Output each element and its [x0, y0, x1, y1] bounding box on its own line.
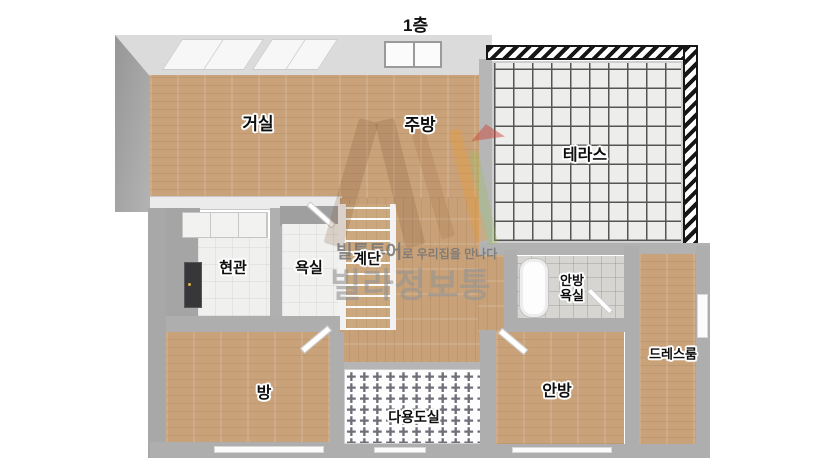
terrace-hatch-top	[486, 45, 690, 60]
wall-dressroom-left	[625, 246, 639, 458]
label-entrance: 현관	[219, 257, 247, 278]
label-terrace: 테라스	[563, 141, 607, 165]
label-master-bathroom-line2: 욕실	[560, 288, 584, 303]
wall-room-utility	[330, 332, 344, 458]
floorplan-canvas: 1층 ✚✚✚✚✚✚✚✚✚✚✚✚✚✚✚	[0, 0, 840, 472]
window-mullion	[413, 43, 415, 66]
window-mullion	[204, 40, 224, 69]
label-master-bathroom-line1: 안방	[560, 273, 584, 288]
window-mullion	[286, 40, 306, 69]
wall-master-bath-bottom	[504, 318, 624, 332]
wall-left-lower	[148, 208, 166, 458]
door-handle	[188, 283, 191, 286]
label-kitchen: 주방	[404, 111, 435, 136]
label-master-bedroom: 안방	[542, 377, 571, 401]
room-window-sill	[214, 446, 324, 453]
master-window-sill	[512, 447, 612, 453]
terrace-hatch-right	[683, 45, 698, 251]
entrance-door	[184, 262, 202, 308]
kitchen-window	[384, 41, 442, 68]
wall-utility-top	[344, 362, 480, 369]
entrance-closet	[182, 212, 268, 238]
dressroom-window	[697, 294, 708, 338]
label-stairs: 계단	[353, 248, 381, 269]
label-room: 방	[257, 379, 272, 403]
bathtub	[519, 258, 549, 318]
label-living-room: 거실	[242, 110, 273, 135]
label-utility: 다용도실	[388, 407, 440, 427]
label-dressroom: 드레스룸	[649, 344, 697, 363]
label-bathroom: 욕실	[295, 257, 323, 278]
wall-room-top	[148, 316, 340, 332]
wall-utility-master	[480, 330, 496, 458]
wall-dressroom-bottom	[639, 444, 710, 458]
label-master-bathroom: 안방 욕실	[560, 273, 584, 303]
utility-window-sill	[374, 447, 426, 453]
floor-title: 1층	[403, 11, 428, 36]
wall-dressroom-right	[696, 246, 710, 458]
wall-master-bath-left	[504, 250, 517, 322]
